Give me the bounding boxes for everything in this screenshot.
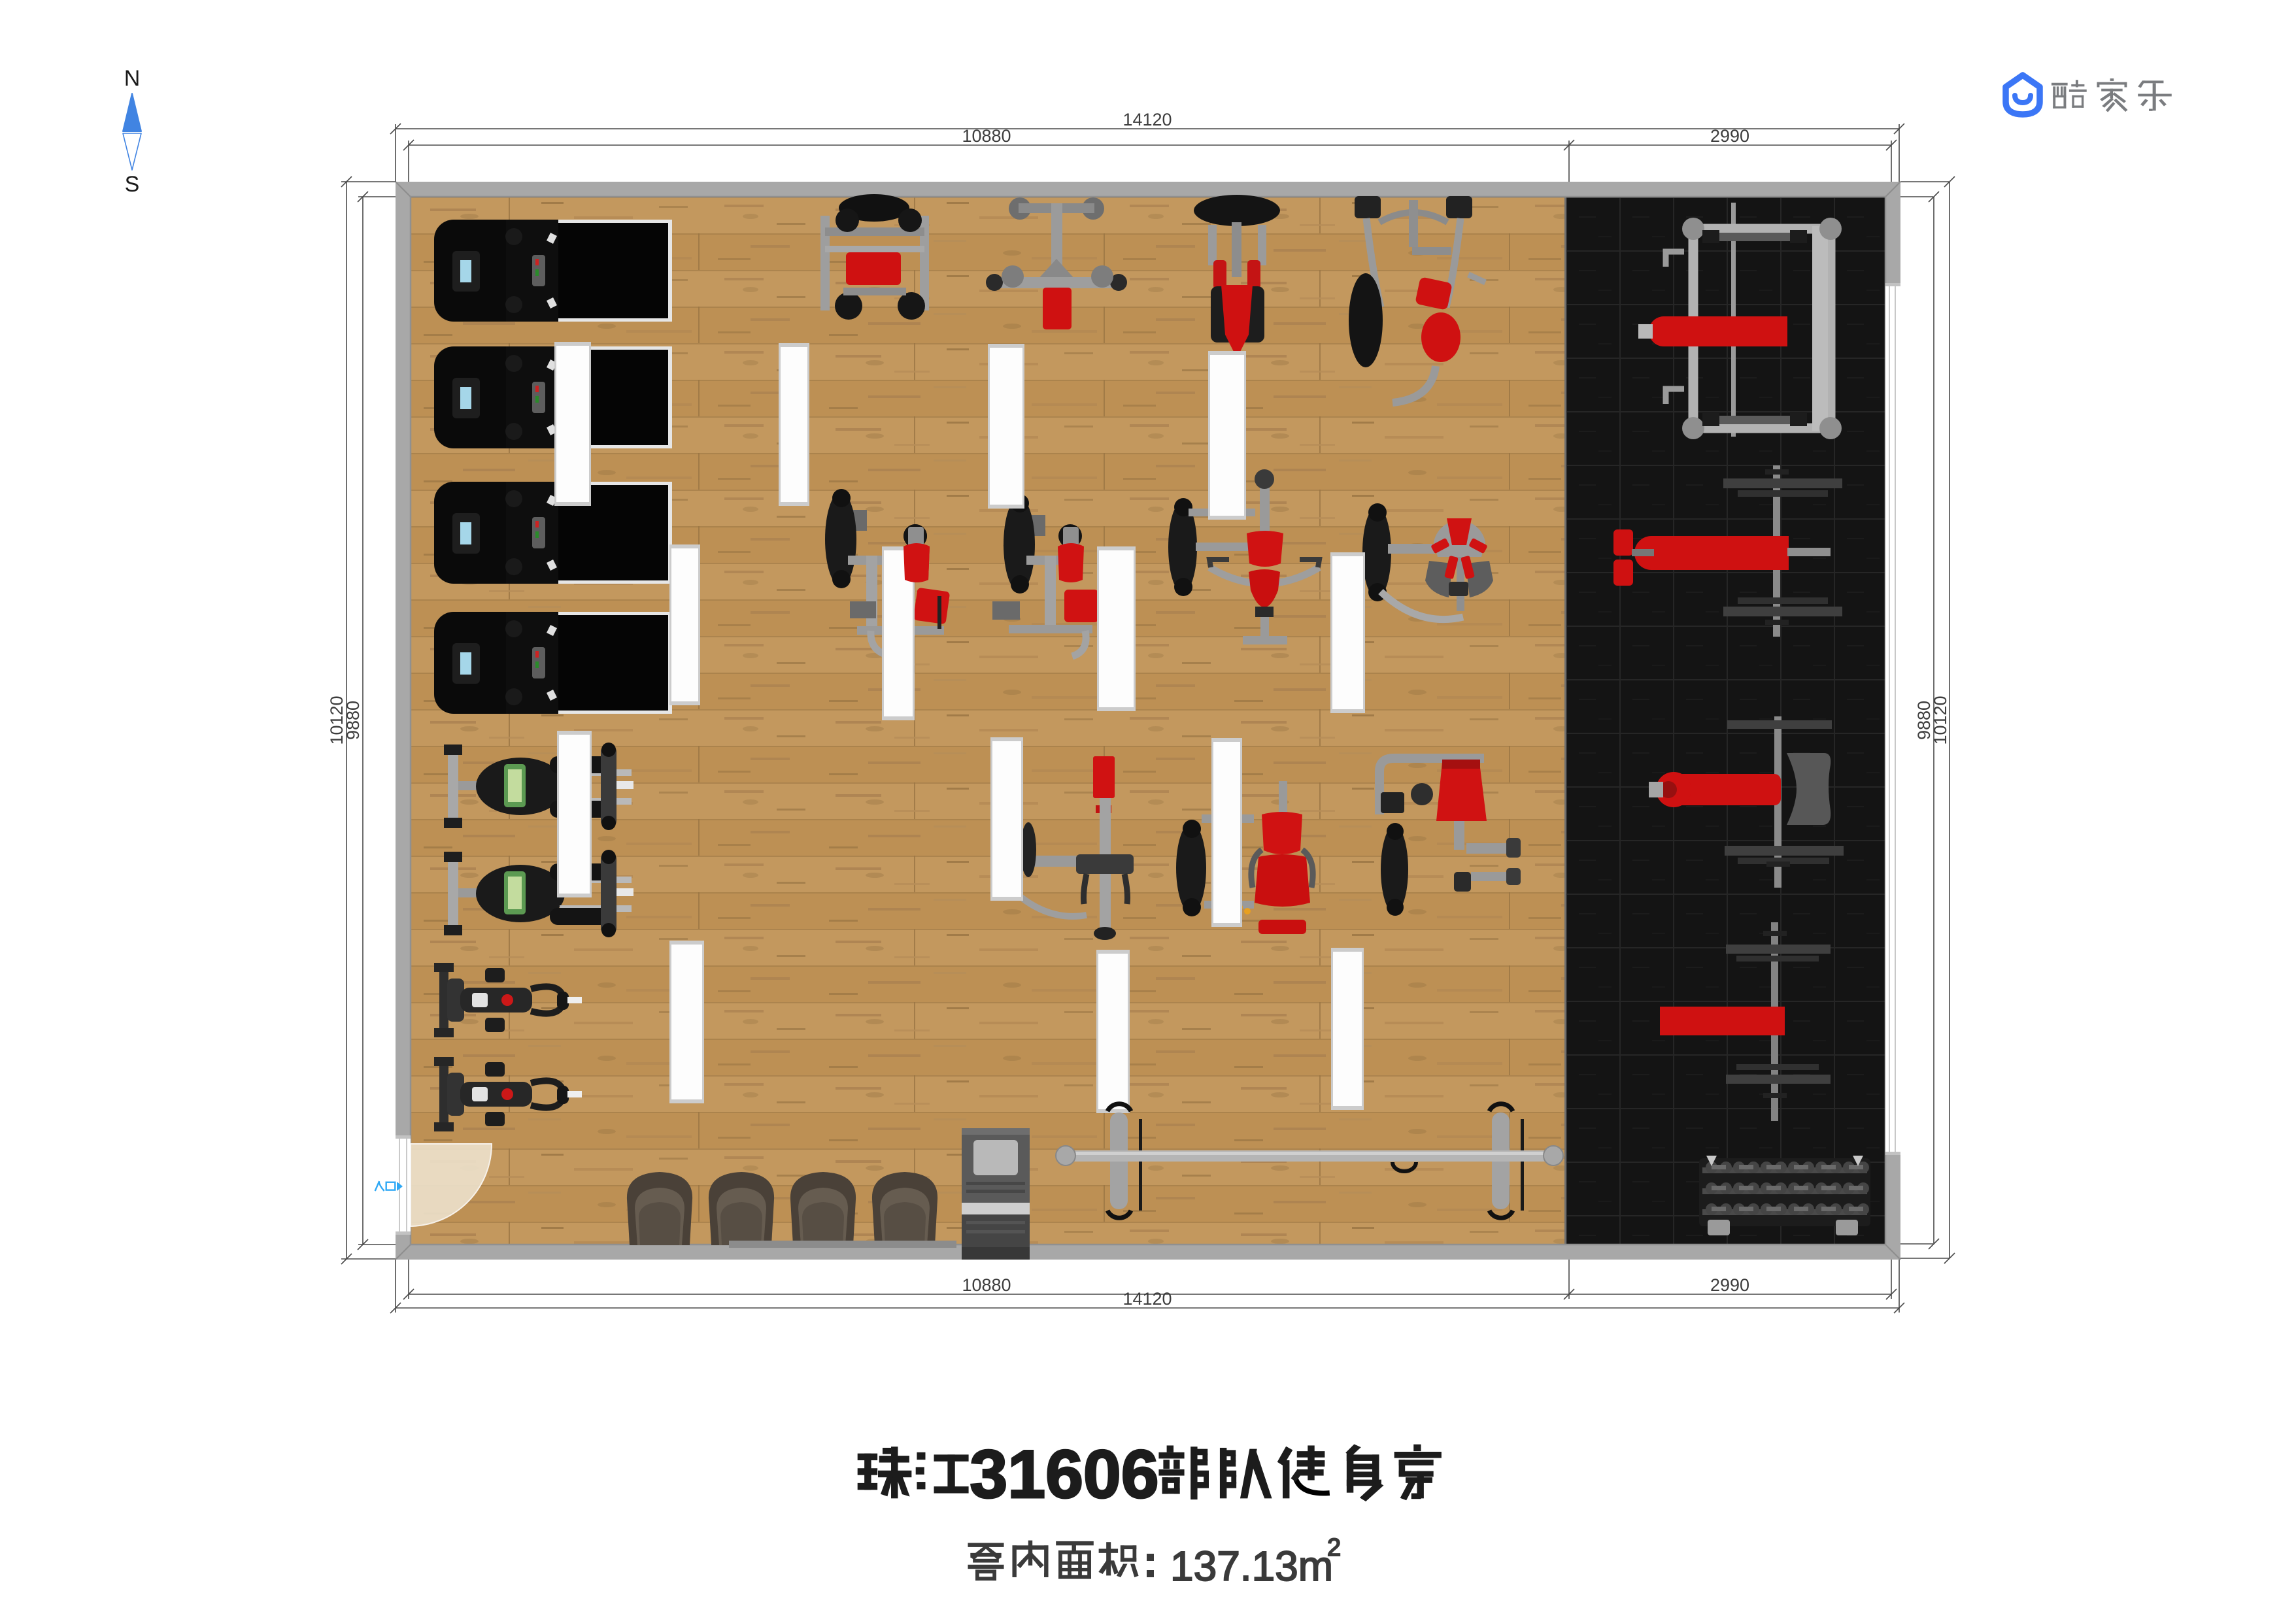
svg-text:2990: 2990 [1710, 126, 1749, 146]
svg-text:10880: 10880 [962, 126, 1011, 146]
svg-text:N: N [124, 66, 141, 91]
svg-text:14120: 14120 [1123, 110, 1172, 129]
svg-text:S: S [125, 172, 140, 197]
svg-text:137.13m: 137.13m [1170, 1543, 1333, 1590]
svg-text:14120: 14120 [1123, 1289, 1172, 1309]
svg-text:9880: 9880 [343, 701, 363, 740]
svg-text:2: 2 [1327, 1534, 1341, 1562]
svg-text:2990: 2990 [1710, 1275, 1749, 1295]
svg-text:10880: 10880 [962, 1275, 1011, 1295]
svg-text:10120: 10120 [1931, 695, 1950, 745]
svg-text:31606: 31606 [970, 1437, 1158, 1513]
